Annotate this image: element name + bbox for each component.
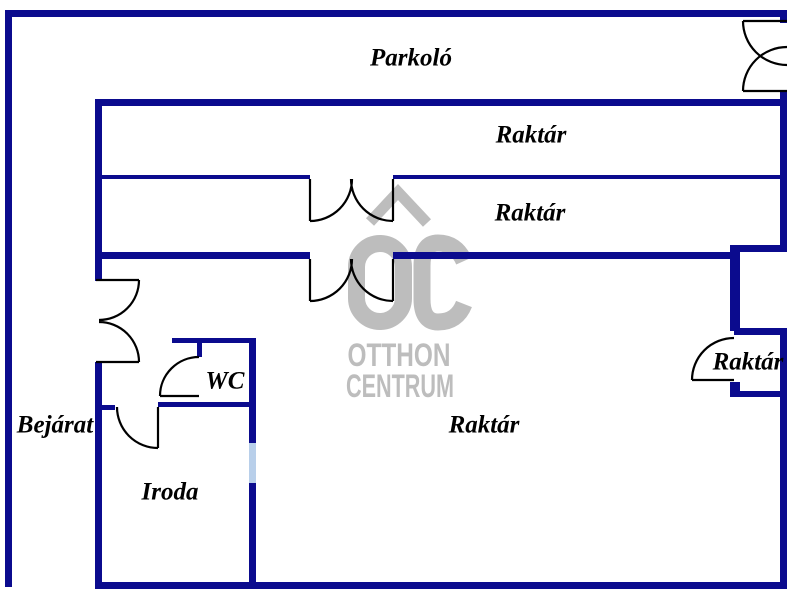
room-label-raktar-main: Raktár: [448, 412, 520, 439]
bottom-wall: [95, 582, 787, 589]
wc-left-stub: [197, 343, 202, 357]
bejarat-double-door: [96, 280, 139, 362]
smallroom-top-wall: [734, 328, 787, 335]
outer-left-wall: [5, 10, 12, 587]
divider-lower-wall: [249, 483, 256, 589]
room-label-raktar-band2: Raktár: [494, 200, 566, 227]
room-label-bejarat: Bejárat: [16, 412, 94, 439]
wc-top-wall: [172, 338, 256, 343]
wc-bottom-wall: [158, 402, 249, 407]
smallroom-bottom-wall: [730, 391, 787, 397]
band1-top-wall: [95, 99, 787, 106]
divider-upper-wall: [249, 338, 256, 443]
band-bottom-left: [95, 252, 310, 259]
floor-plan-drawing: OTTHON CENTRUM ParkolóRaktárRaktárRaktár…: [0, 0, 800, 600]
iroda-door: [117, 407, 158, 448]
wc-door: [160, 357, 199, 396]
watermark-logo: OTTHON CENTRUM: [346, 192, 464, 404]
outer-right-mid-wall: [780, 91, 787, 252]
floor-plan: OTTHON CENTRUM ParkolóRaktárRaktárRaktár…: [0, 0, 800, 600]
outer-top-wall: [5, 10, 787, 17]
inner-left-lower-wall: [95, 362, 102, 589]
room-label-raktar-small: Raktár: [712, 349, 784, 376]
watermark-line2: CENTRUM: [346, 368, 454, 404]
band-bottom-right: [393, 252, 733, 259]
iroda-window: [249, 443, 256, 483]
band-separator-left: [95, 175, 310, 179]
room-label-parkolo: Parkoló: [369, 45, 452, 72]
room-label-iroda: Iroda: [141, 479, 199, 506]
iroda-door-stub: [95, 405, 115, 410]
smallroom-left-wall: [730, 245, 740, 331]
band-separator-right: [393, 175, 787, 179]
room-label-wc: WC: [206, 368, 245, 395]
room-label-raktar-band1: Raktár: [495, 122, 567, 149]
parkolo-entrance-door: [743, 21, 787, 91]
